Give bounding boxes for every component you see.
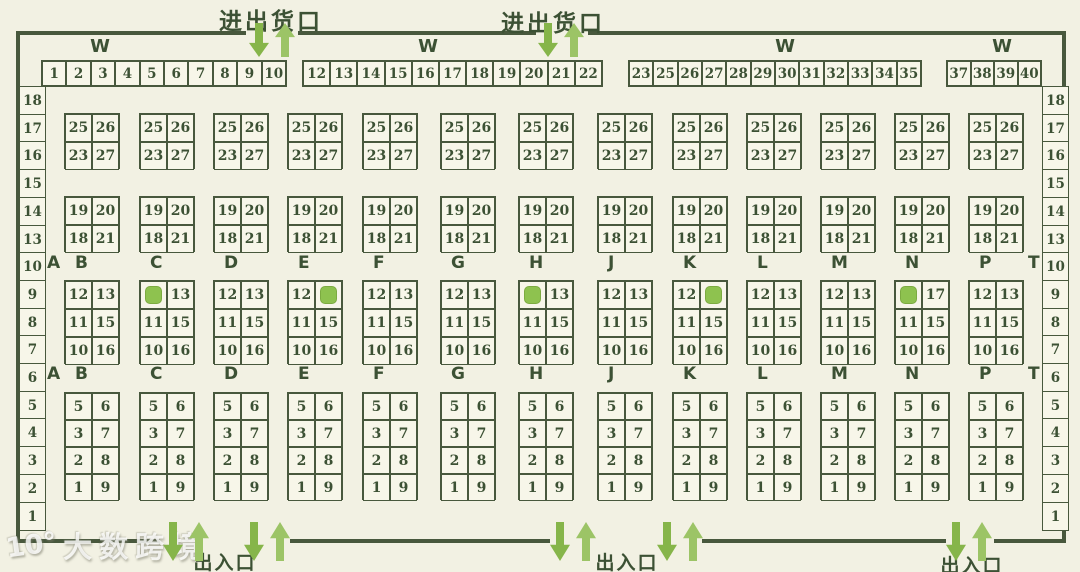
booth-cell-H-19: 19: [519, 197, 546, 225]
wall-slot-16: 16: [412, 61, 439, 86]
booth-cell-occupied: [315, 281, 342, 309]
booth-cell-K-5: 5: [673, 393, 700, 420]
left-row-label-14: 14: [19, 197, 46, 226]
booth-cell-J-9: 9: [625, 474, 652, 501]
booth-cell-F-5: 5: [363, 393, 390, 420]
right-row-label-2: 2: [1042, 474, 1069, 503]
booth-cell-P-11: 11: [969, 309, 996, 337]
booth-cell-L-25: 25: [747, 114, 774, 142]
booth-cell-J-8: 8: [625, 447, 652, 474]
rack-block-N-rack-row-1-9: 56372819: [894, 392, 950, 500]
booth-cell-B-21: 21: [92, 225, 119, 253]
booth-cell-L-27: 27: [774, 142, 801, 170]
aisle-letter-C-row1: C: [150, 253, 180, 275]
booth-cell-N-17: 17: [922, 281, 949, 309]
booth-cell-F-6: 6: [390, 393, 417, 420]
wall-slot-27: 27: [702, 61, 726, 86]
booth-cell-N-21: 21: [922, 225, 949, 253]
booth-cell-B-23: 23: [65, 142, 92, 170]
booth-cell-P-2: 2: [969, 447, 996, 474]
booth-cell-F-1: 1: [363, 474, 390, 501]
aisle-letter-T-row2: T: [1028, 364, 1058, 386]
booth-cell-E-10: 10: [288, 337, 315, 365]
booth-cell-K-23: 23: [673, 142, 700, 170]
right-row-label-17: 17: [1042, 114, 1069, 143]
booth-cell-C-2: 2: [140, 447, 167, 474]
rack-block-G-rack-row-10-16: 121311151016: [440, 280, 496, 364]
rack-block-L-rack-row-10-16: 121311151016: [746, 280, 802, 364]
booth-cell-M-2: 2: [821, 447, 848, 474]
aisle-letter-J-row2: J: [608, 364, 638, 386]
booth-cell-J-19: 19: [598, 197, 625, 225]
entrance-exit-arrows: [946, 522, 992, 561]
booth-cell-N-15: 15: [922, 309, 949, 337]
booth-cell-P-25: 25: [969, 114, 996, 142]
watermark-logo: 10°: [4, 526, 59, 564]
booth-cell-L-6: 6: [774, 393, 801, 420]
left-row-label-16: 16: [19, 141, 46, 170]
booth-cell-D-25: 25: [214, 114, 241, 142]
rack-block-J-rack-row-18-21: 19201821: [597, 196, 653, 252]
booth-cell-D-10: 10: [214, 337, 241, 365]
up-arrow-icon: [189, 522, 209, 561]
right-row-label-4: 4: [1042, 418, 1069, 447]
booth-cell-J-11: 11: [598, 309, 625, 337]
booth-cell-occupied: [519, 281, 546, 309]
rack-block-N-rack-row-23-27: 25262327: [894, 113, 950, 169]
floor-plan: 进出货口 进出货口 出入口 出入口 出入口 10° 大数跨境 WWWW12345…: [0, 0, 1080, 572]
booth-cell-L-11: 11: [747, 309, 774, 337]
booth-cell-L-18: 18: [747, 225, 774, 253]
wall-slot-14: 14: [357, 61, 384, 86]
booth-cell-F-19: 19: [363, 197, 390, 225]
booth-cell-K-8: 8: [700, 447, 727, 474]
left-row-label-8: 8: [19, 308, 46, 337]
booth-cell-E-23: 23: [288, 142, 315, 170]
booth-cell-E-20: 20: [315, 197, 342, 225]
booth-cell-D-27: 27: [241, 142, 268, 170]
booth-cell-B-9: 9: [92, 474, 119, 501]
up-arrow-icon: [275, 23, 295, 57]
booth-cell-H-2: 2: [519, 447, 546, 474]
booth-cell-B-8: 8: [92, 447, 119, 474]
aisle-letter-F-row2: F: [373, 364, 403, 386]
booth-cell-H-26: 26: [546, 114, 573, 142]
rack-block-B-rack-row-1-9: 56372819: [64, 392, 120, 500]
booth-cell-C-13: 13: [167, 281, 194, 309]
booth-cell-P-18: 18: [969, 225, 996, 253]
booth-cell-B-10: 10: [65, 337, 92, 365]
booth-cell-K-12: 12: [673, 281, 700, 309]
booth-cell-H-11: 11: [519, 309, 546, 337]
booth-cell-F-16: 16: [390, 337, 417, 365]
booth-cell-M-7: 7: [848, 420, 875, 447]
booth-cell-G-18: 18: [441, 225, 468, 253]
wall-slot-28: 28: [726, 61, 750, 86]
occupied-marker: [145, 286, 162, 304]
entrance-exit-arrows: [550, 522, 596, 561]
wall-slot-34: 34: [872, 61, 896, 86]
rack-block-N-rack-row-10-16: 1711151016: [894, 280, 950, 364]
right-row-label-8: 8: [1042, 308, 1069, 337]
rack-block-C-rack-row-18-21: 19201821: [139, 196, 195, 252]
booth-cell-N-16: 16: [922, 337, 949, 365]
aisle-letter-B-row1: B: [75, 253, 105, 275]
booth-cell-C-21: 21: [167, 225, 194, 253]
booth-cell-G-9: 9: [468, 474, 495, 501]
booth-cell-N-9: 9: [922, 474, 949, 501]
right-row-label-7: 7: [1042, 335, 1069, 364]
rack-block-P-rack-row-18-21: 19201821: [968, 196, 1024, 252]
booth-cell-P-12: 12: [969, 281, 996, 309]
up-arrow-icon: [576, 522, 596, 561]
rack-block-E-rack-row-23-27: 25262327: [287, 113, 343, 169]
booth-cell-P-16: 16: [996, 337, 1023, 365]
booth-cell-J-16: 16: [625, 337, 652, 365]
booth-cell-K-10: 10: [673, 337, 700, 365]
booth-cell-L-8: 8: [774, 447, 801, 474]
booth-cell-D-3: 3: [214, 420, 241, 447]
booth-cell-P-15: 15: [996, 309, 1023, 337]
booth-cell-E-16: 16: [315, 337, 342, 365]
booth-cell-F-23: 23: [363, 142, 390, 170]
up-arrow-icon: [564, 23, 584, 57]
rack-block-H-rack-row-18-21: 19201821: [518, 196, 574, 252]
booth-cell-H-13: 13: [546, 281, 573, 309]
booth-cell-H-21: 21: [546, 225, 573, 253]
wall-slot-5: 5: [140, 61, 164, 86]
aisle-letter-E-row2: E: [298, 364, 328, 386]
booth-cell-B-27: 27: [92, 142, 119, 170]
booth-cell-J-12: 12: [598, 281, 625, 309]
booth-cell-N-3: 3: [895, 420, 922, 447]
booth-cell-D-1: 1: [214, 474, 241, 501]
booth-cell-E-1: 1: [288, 474, 315, 501]
booth-cell-F-15: 15: [390, 309, 417, 337]
entrance-exit-arrows: [657, 522, 703, 561]
booth-cell-D-20: 20: [241, 197, 268, 225]
booth-cell-M-8: 8: [848, 447, 875, 474]
booth-cell-F-3: 3: [363, 420, 390, 447]
wall-slot-18: 18: [466, 61, 493, 86]
booth-cell-B-3: 3: [65, 420, 92, 447]
left-row-label-2: 2: [19, 474, 46, 503]
booth-cell-G-5: 5: [441, 393, 468, 420]
booth-cell-H-3: 3: [519, 420, 546, 447]
booth-cell-M-16: 16: [848, 337, 875, 365]
booth-cell-M-9: 9: [848, 474, 875, 501]
booth-cell-H-9: 9: [546, 474, 573, 501]
booth-cell-C-7: 7: [167, 420, 194, 447]
booth-cell-B-26: 26: [92, 114, 119, 142]
right-row-label-16: 16: [1042, 141, 1069, 170]
booth-cell-M-3: 3: [821, 420, 848, 447]
booth-cell-J-10: 10: [598, 337, 625, 365]
booth-cell-L-20: 20: [774, 197, 801, 225]
rack-block-K-rack-row-23-27: 25262327: [672, 113, 728, 169]
booth-cell-L-5: 5: [747, 393, 774, 420]
booth-cell-G-23: 23: [441, 142, 468, 170]
booth-cell-P-1: 1: [969, 474, 996, 501]
aisle-letter-J-row1: J: [608, 253, 638, 275]
booth-cell-G-19: 19: [441, 197, 468, 225]
booth-cell-C-6: 6: [167, 393, 194, 420]
booth-cell-C-10: 10: [140, 337, 167, 365]
booth-cell-P-6: 6: [996, 393, 1023, 420]
wall-slot-13: 13: [330, 61, 357, 86]
rack-block-F-rack-row-23-27: 25262327: [362, 113, 418, 169]
aisle-letter-D-row2: D: [224, 364, 254, 386]
rack-block-F-rack-row-18-21: 19201821: [362, 196, 418, 252]
booth-cell-J-13: 13: [625, 281, 652, 309]
booth-cell-B-12: 12: [65, 281, 92, 309]
booth-cell-M-25: 25: [821, 114, 848, 142]
booth-cell-H-15: 15: [546, 309, 573, 337]
booth-cell-C-15: 15: [167, 309, 194, 337]
booth-cell-J-6: 6: [625, 393, 652, 420]
left-row-label-13: 13: [19, 225, 46, 254]
booth-cell-J-27: 27: [625, 142, 652, 170]
wall-slot-30: 30: [775, 61, 799, 86]
wall-slot-38: 38: [971, 61, 995, 86]
booth-cell-F-18: 18: [363, 225, 390, 253]
wall-slot-7: 7: [188, 61, 212, 86]
booth-cell-E-27: 27: [315, 142, 342, 170]
booth-cell-D-16: 16: [241, 337, 268, 365]
wall-slot-group: 12345678910: [41, 60, 287, 87]
booth-cell-occupied: [895, 281, 922, 309]
booth-cell-J-5: 5: [598, 393, 625, 420]
booth-cell-H-8: 8: [546, 447, 573, 474]
booth-cell-K-15: 15: [700, 309, 727, 337]
goods-gate-arrows: [249, 23, 295, 57]
up-arrow-icon: [270, 522, 290, 561]
aisle-letter-F-row1: F: [373, 253, 403, 275]
booth-cell-F-20: 20: [390, 197, 417, 225]
booth-cell-N-25: 25: [895, 114, 922, 142]
booth-cell-M-27: 27: [848, 142, 875, 170]
aisle-letter-H-row1: H: [529, 253, 559, 275]
booth-cell-N-6: 6: [922, 393, 949, 420]
booth-cell-B-5: 5: [65, 393, 92, 420]
booth-cell-P-23: 23: [969, 142, 996, 170]
booth-cell-N-11: 11: [895, 309, 922, 337]
booth-cell-K-7: 7: [700, 420, 727, 447]
aisle-letter-A-row2: A: [47, 364, 77, 386]
booth-cell-B-2: 2: [65, 447, 92, 474]
booth-cell-D-9: 9: [241, 474, 268, 501]
booth-cell-E-11: 11: [288, 309, 315, 337]
booth-cell-G-7: 7: [468, 420, 495, 447]
booth-cell-D-12: 12: [214, 281, 241, 309]
booth-cell-G-20: 20: [468, 197, 495, 225]
booth-cell-L-7: 7: [774, 420, 801, 447]
left-row-label-7: 7: [19, 335, 46, 364]
aisle-letter-C-row2: C: [150, 364, 180, 386]
left-row-label-4: 4: [19, 418, 46, 447]
booth-cell-L-23: 23: [747, 142, 774, 170]
booth-cell-E-12: 12: [288, 281, 315, 309]
booth-cell-H-23: 23: [519, 142, 546, 170]
booth-cell-K-26: 26: [700, 114, 727, 142]
booth-cell-J-7: 7: [625, 420, 652, 447]
booth-cell-M-15: 15: [848, 309, 875, 337]
booth-cell-F-25: 25: [363, 114, 390, 142]
booth-cell-G-25: 25: [441, 114, 468, 142]
wall-slot-23: 23: [629, 61, 653, 86]
booth-cell-M-19: 19: [821, 197, 848, 225]
booth-cell-J-20: 20: [625, 197, 652, 225]
left-row-label-6: 6: [19, 363, 46, 392]
booth-cell-L-13: 13: [774, 281, 801, 309]
booth-cell-N-19: 19: [895, 197, 922, 225]
wall-slot-35: 35: [897, 61, 921, 86]
booth-cell-C-25: 25: [140, 114, 167, 142]
booth-cell-J-23: 23: [598, 142, 625, 170]
aisle-letter-K-row2: K: [683, 364, 713, 386]
booth-cell-M-10: 10: [821, 337, 848, 365]
booth-cell-N-8: 8: [922, 447, 949, 474]
rack-block-J-rack-row-23-27: 25262327: [597, 113, 653, 169]
booth-cell-E-15: 15: [315, 309, 342, 337]
booth-cell-K-9: 9: [700, 474, 727, 501]
booth-cell-K-11: 11: [673, 309, 700, 337]
booth-cell-F-13: 13: [390, 281, 417, 309]
booth-cell-G-6: 6: [468, 393, 495, 420]
booth-cell-E-5: 5: [288, 393, 315, 420]
booth-cell-N-7: 7: [922, 420, 949, 447]
booth-cell-C-26: 26: [167, 114, 194, 142]
booth-cell-P-5: 5: [969, 393, 996, 420]
right-row-label-9: 9: [1042, 280, 1069, 309]
aisle-letter-D-row1: D: [224, 253, 254, 275]
down-arrow-icon: [946, 522, 966, 561]
booth-cell-G-27: 27: [468, 142, 495, 170]
booth-cell-N-10: 10: [895, 337, 922, 365]
booth-cell-G-8: 8: [468, 447, 495, 474]
wall-section-label: W: [408, 36, 448, 56]
booth-cell-B-20: 20: [92, 197, 119, 225]
wall-section-label: W: [80, 36, 120, 56]
booth-cell-G-3: 3: [441, 420, 468, 447]
booth-cell-M-23: 23: [821, 142, 848, 170]
booth-cell-K-3: 3: [673, 420, 700, 447]
left-row-label-3: 3: [19, 446, 46, 475]
rack-block-M-rack-row-18-21: 19201821: [820, 196, 876, 252]
aisle-letter-N-row2: N: [905, 364, 935, 386]
wall-slot-32: 32: [824, 61, 848, 86]
booth-cell-D-21: 21: [241, 225, 268, 253]
booth-cell-K-6: 6: [700, 393, 727, 420]
right-row-label-1: 1: [1042, 502, 1069, 531]
rack-block-P-rack-row-23-27: 25262327: [968, 113, 1024, 169]
down-arrow-icon: [244, 522, 264, 561]
rack-block-K-rack-row-10-16: 1211151016: [672, 280, 728, 364]
rack-block-H-rack-row-1-9: 56372819: [518, 392, 574, 500]
wall-slot-39: 39: [994, 61, 1018, 86]
booth-cell-D-8: 8: [241, 447, 268, 474]
aisle-letter-A-row1: A: [47, 253, 77, 275]
wall-slot-9: 9: [237, 61, 261, 86]
booth-cell-C-5: 5: [140, 393, 167, 420]
booth-cell-C-27: 27: [167, 142, 194, 170]
booth-cell-F-7: 7: [390, 420, 417, 447]
rack-block-G-rack-row-18-21: 19201821: [440, 196, 496, 252]
booth-cell-L-21: 21: [774, 225, 801, 253]
booth-cell-L-3: 3: [747, 420, 774, 447]
booth-cell-E-21: 21: [315, 225, 342, 253]
booth-cell-N-1: 1: [895, 474, 922, 501]
occupied-marker: [320, 286, 337, 304]
booth-cell-M-6: 6: [848, 393, 875, 420]
booth-cell-P-21: 21: [996, 225, 1023, 253]
right-row-label-18: 18: [1042, 86, 1069, 115]
booth-cell-H-25: 25: [519, 114, 546, 142]
booth-cell-D-13: 13: [241, 281, 268, 309]
rack-block-K-rack-row-1-9: 56372819: [672, 392, 728, 500]
booth-cell-H-18: 18: [519, 225, 546, 253]
booth-cell-P-13: 13: [996, 281, 1023, 309]
rack-block-L-rack-row-18-21: 19201821: [746, 196, 802, 252]
rack-block-F-rack-row-10-16: 121311151016: [362, 280, 418, 364]
booth-cell-K-18: 18: [673, 225, 700, 253]
rack-block-E-rack-row-18-21: 19201821: [287, 196, 343, 252]
booth-cell-G-10: 10: [441, 337, 468, 365]
booth-cell-E-25: 25: [288, 114, 315, 142]
right-row-label-5: 5: [1042, 391, 1069, 420]
booth-cell-H-16: 16: [546, 337, 573, 365]
wall-slot-40: 40: [1018, 61, 1042, 86]
rack-block-M-rack-row-10-16: 121311151016: [820, 280, 876, 364]
wall-slot-group: 232526272829303132333435: [628, 60, 922, 87]
booth-cell-K-21: 21: [700, 225, 727, 253]
booth-cell-E-18: 18: [288, 225, 315, 253]
wall-slot-group: 37383940: [946, 60, 1042, 87]
booth-cell-L-9: 9: [774, 474, 801, 501]
booth-cell-M-13: 13: [848, 281, 875, 309]
booth-cell-G-2: 2: [441, 447, 468, 474]
booth-cell-C-8: 8: [167, 447, 194, 474]
aisle-letter-M-row1: M: [831, 253, 861, 275]
down-arrow-icon: [163, 522, 183, 561]
booth-cell-C-11: 11: [140, 309, 167, 337]
right-row-label-14: 14: [1042, 197, 1069, 226]
wall-slot-group: 1213141516171819202122: [302, 60, 603, 87]
booth-cell-F-10: 10: [363, 337, 390, 365]
booth-cell-M-18: 18: [821, 225, 848, 253]
aisle-letter-M-row2: M: [831, 364, 861, 386]
booth-cell-G-13: 13: [468, 281, 495, 309]
booth-cell-L-16: 16: [774, 337, 801, 365]
occupied-marker: [900, 286, 917, 304]
wall-slot-21: 21: [548, 61, 575, 86]
rack-block-G-rack-row-1-9: 56372819: [440, 392, 496, 500]
booth-cell-B-19: 19: [65, 197, 92, 225]
aisle-letter-B-row2: B: [75, 364, 105, 386]
aisle-letter-N-row1: N: [905, 253, 935, 275]
booth-cell-M-20: 20: [848, 197, 875, 225]
booth-cell-K-2: 2: [673, 447, 700, 474]
booth-cell-K-27: 27: [700, 142, 727, 170]
booth-cell-H-20: 20: [546, 197, 573, 225]
wall-slot-10: 10: [262, 61, 286, 86]
wall-section-label: W: [765, 36, 805, 56]
booth-cell-L-10: 10: [747, 337, 774, 365]
left-row-label-9: 9: [19, 280, 46, 309]
booth-cell-C-20: 20: [167, 197, 194, 225]
wall-slot-29: 29: [751, 61, 775, 86]
booth-cell-B-1: 1: [65, 474, 92, 501]
